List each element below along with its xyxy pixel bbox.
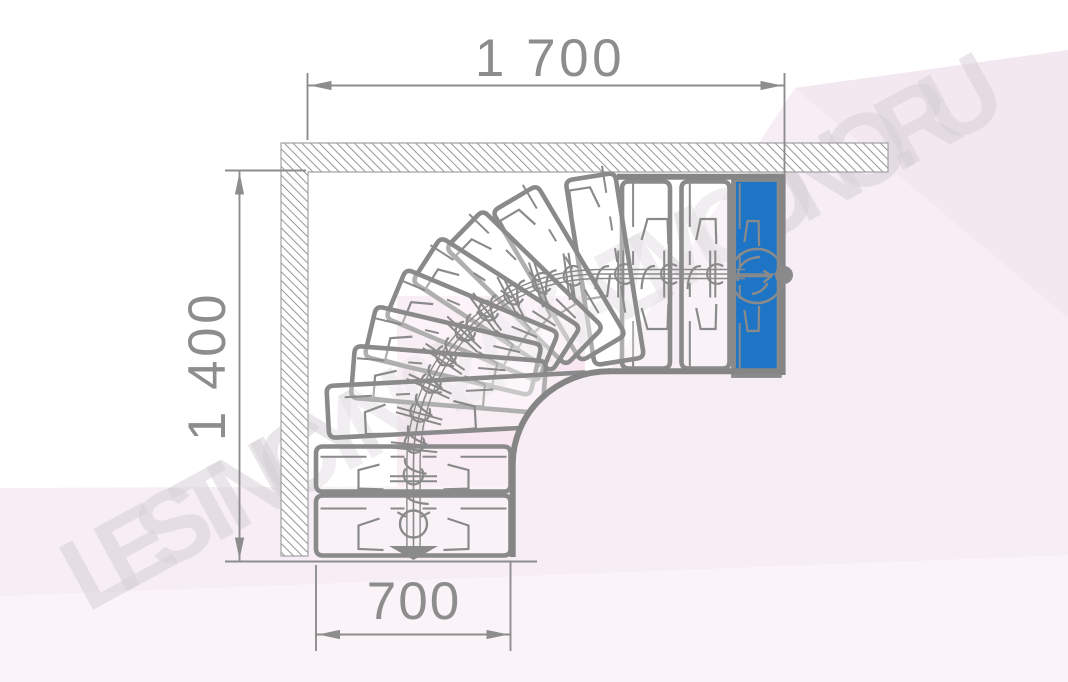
svg-text:700: 700 (367, 572, 461, 631)
svg-text:1 700: 1 700 (475, 29, 625, 88)
svg-text:1 400: 1 400 (178, 291, 237, 441)
